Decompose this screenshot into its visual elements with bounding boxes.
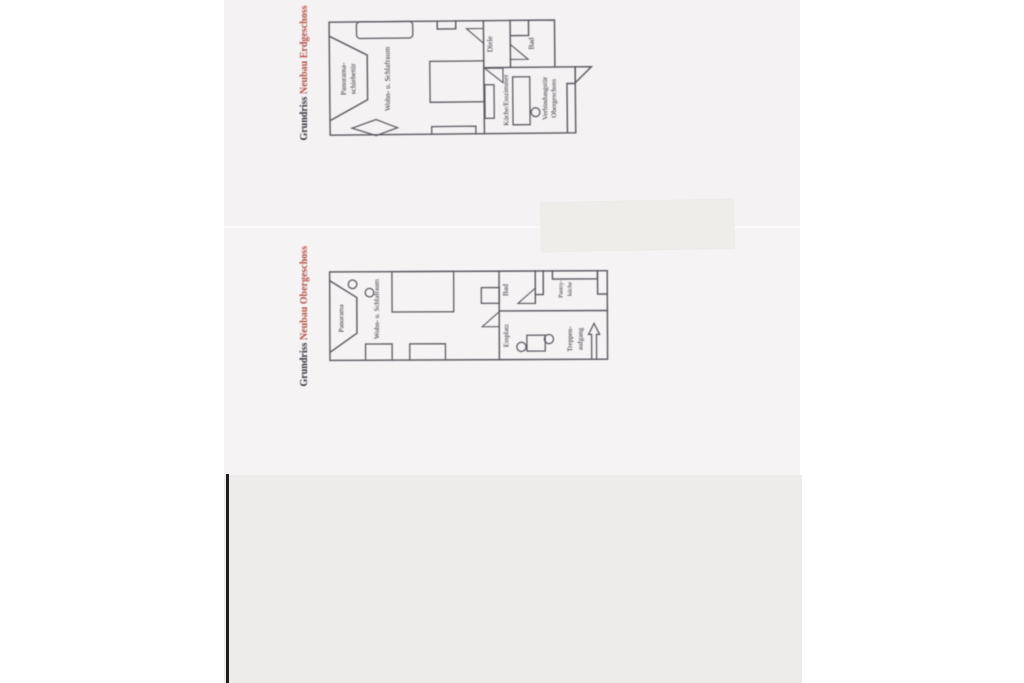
- svg-text:Panorama: Panorama: [337, 303, 345, 332]
- svg-text:Bad: Bad: [527, 37, 536, 49]
- svg-text:aufgang: aufgang: [576, 327, 584, 350]
- svg-text:Küche/Esszimmer: Küche/Esszimmer: [502, 74, 510, 126]
- svg-text:Obergeschoss: Obergeschoss: [550, 79, 558, 118]
- svg-text:Diele: Diele: [485, 35, 494, 52]
- svg-text:Bad: Bad: [501, 284, 510, 296]
- svg-text:Panorama-: Panorama-: [339, 62, 348, 95]
- svg-text:schiebetür: schiebetür: [348, 63, 357, 94]
- svg-text:Verbindungstür: Verbindungstür: [541, 76, 549, 120]
- svg-text:Treppen-: Treppen-: [566, 326, 574, 352]
- svg-text:Grundriss Neubau Obergeschoss: Grundriss Neubau Obergeschoss: [299, 246, 310, 387]
- svg-text:küche: küche: [567, 281, 573, 296]
- svg-text:Wohn- u. Schlafraum: Wohn- u. Schlafraum: [383, 47, 393, 111]
- svg-text:Pantry-: Pantry-: [558, 280, 564, 298]
- svg-text:Grundriss Neubau Erdgeschoss: Grundriss Neubau Erdgeschoss: [299, 5, 310, 140]
- svg-text:Essplatz: Essplatz: [502, 324, 510, 347]
- svg-text:Wohn- u. Schlafraum: Wohn- u. Schlafraum: [373, 278, 381, 338]
